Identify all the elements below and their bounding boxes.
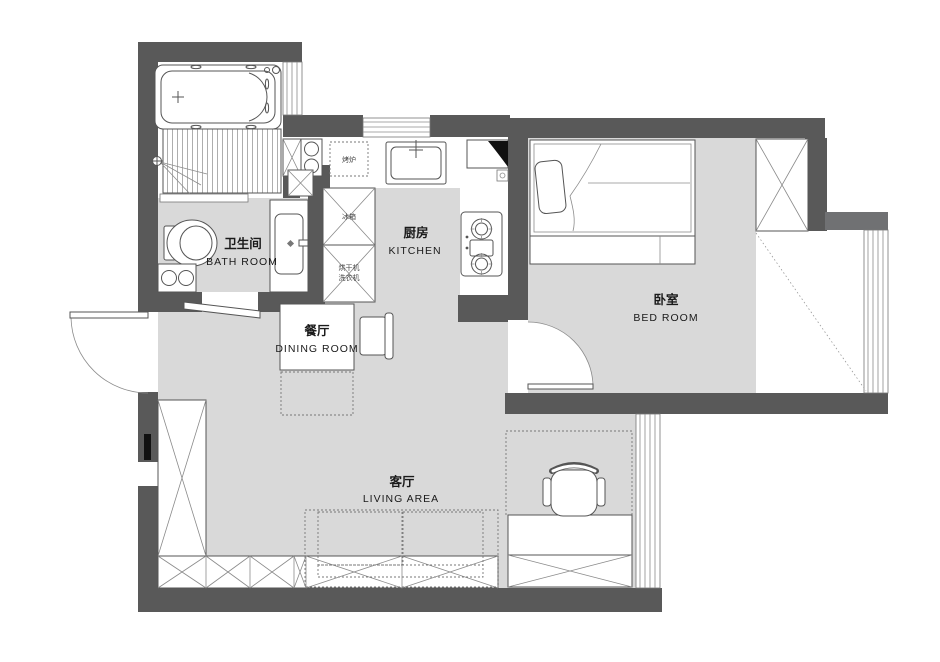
bedroom-label-zh: 卧室 bbox=[653, 292, 679, 307]
bathroom-label-en: BATH ROOM bbox=[206, 256, 278, 268]
bedroom-label-en: BED ROOM bbox=[633, 312, 698, 324]
kitchen-label-zh: 厨房 bbox=[403, 225, 428, 240]
corner-shelf bbox=[467, 140, 508, 181]
washbasin-unit bbox=[158, 264, 196, 292]
living-window bbox=[636, 414, 660, 588]
bathroom-sink bbox=[270, 200, 308, 292]
desk-chair bbox=[543, 465, 605, 516]
shower bbox=[151, 129, 281, 202]
kitchen-label-en: KITCHEN bbox=[388, 245, 441, 257]
dryer-label: 烘干机 bbox=[339, 263, 360, 272]
wall-bedroom-bottom bbox=[505, 393, 888, 414]
floorplan-drawing: 烤炉 冰箱 bbox=[0, 0, 940, 662]
wall-left-lower bbox=[138, 392, 158, 612]
bathtub bbox=[155, 65, 281, 129]
wall-niche-black bbox=[144, 434, 151, 460]
bed-bench bbox=[530, 236, 695, 264]
fridge-label: 冰箱 bbox=[342, 212, 356, 221]
living-label-en: LIVING AREA bbox=[363, 493, 439, 505]
pillow bbox=[534, 160, 566, 215]
desk-cabinet bbox=[508, 555, 632, 587]
bathroom-label-zh: 卫生间 bbox=[224, 236, 262, 251]
kitchen-window bbox=[363, 118, 430, 137]
storage-cabinet-row bbox=[158, 556, 498, 588]
dining-chair bbox=[360, 313, 393, 359]
shower-threshold bbox=[160, 194, 248, 202]
wall-bedroom-top bbox=[510, 118, 825, 138]
oven-label: 烤炉 bbox=[342, 155, 356, 164]
desk bbox=[508, 515, 632, 555]
wall-bath-top bbox=[138, 42, 302, 62]
wall-niche-white bbox=[138, 462, 158, 486]
bathroom-window bbox=[283, 62, 302, 115]
fridge-laundry-column: 冰箱 烘干机 洗衣机 bbox=[323, 188, 375, 302]
wall-interior-vertical bbox=[508, 137, 528, 322]
bay-window-diagonal bbox=[756, 233, 866, 391]
wardrobe bbox=[756, 139, 808, 231]
bedroom-window bbox=[864, 230, 888, 393]
living-label-zh: 客厅 bbox=[388, 474, 415, 489]
entrance-door bbox=[70, 312, 158, 393]
dining-label-zh: 餐厅 bbox=[303, 323, 330, 338]
floors bbox=[158, 138, 805, 588]
wall-bath-right bbox=[308, 190, 323, 298]
tall-cabinet bbox=[158, 400, 206, 556]
wall-kitchen-top-left bbox=[283, 115, 363, 137]
washer-label: 洗衣机 bbox=[339, 273, 360, 282]
kitchen-sink bbox=[386, 140, 446, 184]
wall-bottom bbox=[138, 588, 662, 612]
wall-kitchen-top-right bbox=[430, 115, 510, 137]
wall-ledge-top-right bbox=[825, 212, 888, 230]
dining-label-en: DINING ROOM bbox=[275, 343, 358, 355]
stove bbox=[461, 212, 502, 276]
oven-dashed-box: 烤炉 bbox=[330, 142, 368, 176]
bed bbox=[530, 140, 695, 264]
floorplan-canvas: 烤炉 冰箱 bbox=[0, 0, 940, 662]
wall-kitchen-stub bbox=[458, 295, 508, 322]
